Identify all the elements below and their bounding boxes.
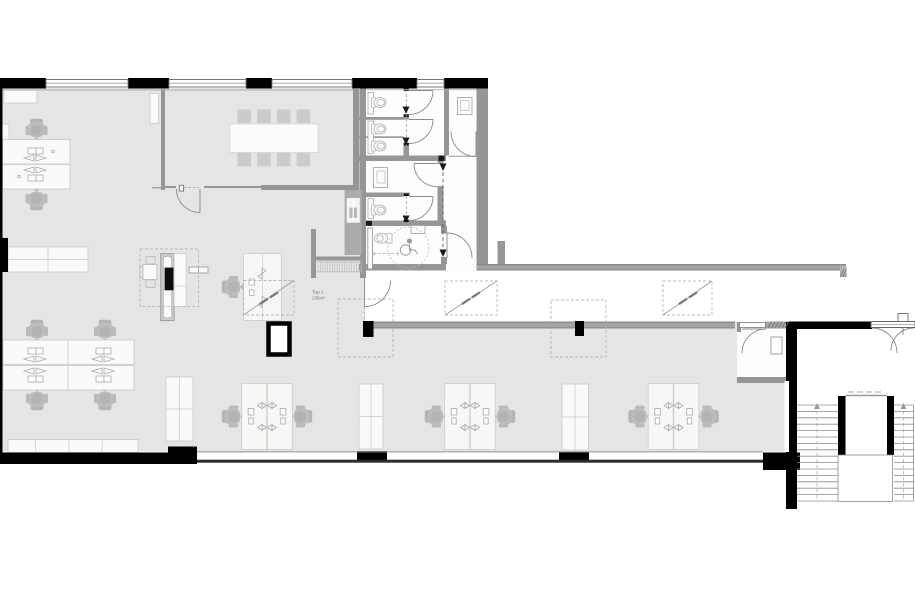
svg-text:235m²: 235m² [312,295,325,300]
